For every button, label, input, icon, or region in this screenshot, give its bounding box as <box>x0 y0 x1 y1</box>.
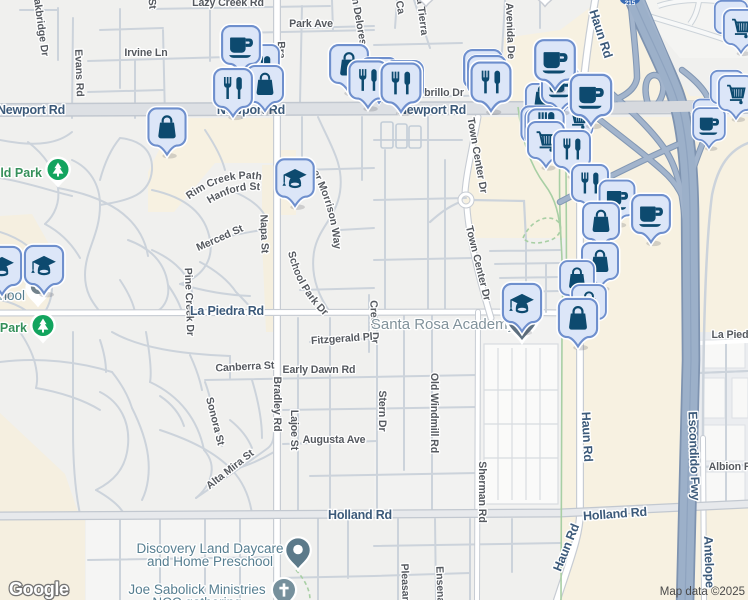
svg-text:La Piedra Rd: La Piedra Rd <box>190 304 264 318</box>
svg-text:215: 215 <box>625 0 636 7</box>
svg-text:Antelope: Antelope <box>701 536 717 589</box>
svg-text:Evans Rd: Evans Rd <box>72 49 86 97</box>
svg-text:and Home Preschool: and Home Preschool <box>147 554 273 569</box>
svg-text:Santa Rosa Academy: Santa Rosa Academy <box>371 316 516 333</box>
svg-text:Stern Dr: Stern Dr <box>376 391 388 432</box>
svg-text:Park: Park <box>0 321 27 335</box>
svg-text:St: St <box>146 0 159 10</box>
svg-text:Bradley Rd: Bradley Rd <box>271 377 283 432</box>
svg-text:Sherman Rd: Sherman Rd <box>476 461 488 522</box>
svg-text:Pine Creek Dr: Pine Creek Dr <box>182 268 196 337</box>
svg-text:Park Ave: Park Ave <box>289 18 333 30</box>
svg-text:Albion R: Albion R <box>709 461 748 473</box>
svg-text:Lajoe St: Lajoe St <box>288 410 300 451</box>
svg-text:La Piedr: La Piedr <box>711 329 748 341</box>
svg-text:Napa St: Napa St <box>257 214 270 254</box>
svg-text:Avenida De: Avenida De <box>503 3 517 60</box>
svg-text:Old Windmill Rd: Old Windmill Rd <box>428 373 440 453</box>
svg-text:Irvine Ln: Irvine Ln <box>124 47 167 59</box>
svg-text:ld Park: ld Park <box>0 166 42 180</box>
svg-text:Augusta Ave: Augusta Ave <box>303 434 366 446</box>
svg-text:brillo Dr: brillo Dr <box>424 87 464 99</box>
svg-text:Ensenad: Ensenad <box>433 566 447 600</box>
svg-text:Haun Rd: Haun Rd <box>579 411 596 462</box>
svg-text:Pleasant: Pleasant <box>398 563 412 600</box>
svg-text:Google: Google <box>9 579 69 599</box>
svg-text:Lazy Creek Rd: Lazy Creek Rd <box>192 0 264 9</box>
svg-text:NCC gathering: NCC gathering <box>152 595 241 600</box>
svg-text:Holland Rd: Holland Rd <box>328 508 392 522</box>
svg-text:Newport Rd: Newport Rd <box>0 103 65 117</box>
svg-text:Map data ©2025: Map data ©2025 <box>660 586 745 598</box>
svg-text:Early Dawn Rd: Early Dawn Rd <box>283 364 356 376</box>
